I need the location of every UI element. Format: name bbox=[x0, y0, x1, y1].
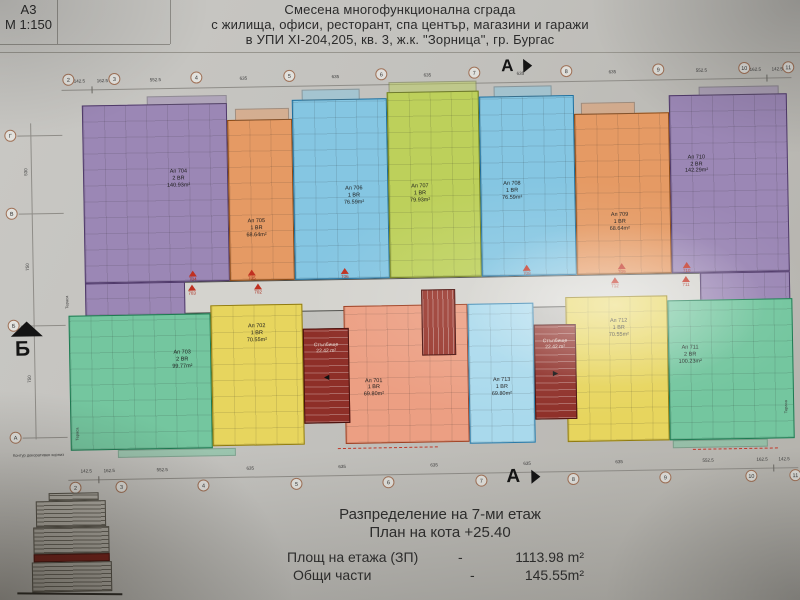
footer-area-value: 1113.98 m² bbox=[492, 549, 584, 565]
apartment-name: Ап 709 bbox=[609, 212, 629, 219]
axis-circle-bottom-7: 7 bbox=[475, 475, 487, 487]
apartment-name: Ап 702 bbox=[247, 323, 267, 330]
apartment-706: Ап 706 1 BR 76.59m² bbox=[292, 98, 390, 280]
entrance-number: 711 bbox=[679, 282, 693, 288]
top-dim-10: 142.5 bbox=[772, 66, 783, 71]
axis-circle-top-7: 7 bbox=[468, 67, 480, 79]
top-dim-7: 635 bbox=[609, 69, 617, 74]
apartment-area: 69.80m² bbox=[492, 390, 512, 397]
apartment-name: Ап 705 bbox=[246, 218, 266, 225]
terrace-710 bbox=[699, 85, 779, 95]
section-marker-B-triangle-icon bbox=[11, 321, 43, 337]
entrance-708: 708 bbox=[520, 265, 534, 277]
axis-circle-top-9: 9 bbox=[652, 63, 664, 75]
apartment-701-label: Ап 701 1 BR 69.80m² bbox=[364, 378, 385, 399]
apartment-area: 100.23m² bbox=[679, 358, 702, 365]
apartment-area: 76.59m² bbox=[502, 195, 522, 202]
entrance-711: 711 bbox=[679, 276, 693, 288]
cornice-dashed-line-2 bbox=[693, 447, 778, 449]
apartment-707: Ап 707 1 BR 79.93m² bbox=[387, 91, 482, 279]
apartment-702-label: Ап 702 1 BR 70.55m² bbox=[247, 323, 268, 344]
cornice-dashed-line-1 bbox=[338, 446, 438, 449]
apartment-area: 69.80m² bbox=[364, 391, 384, 398]
apartment-711-label: Ап 711 2 BR 100.23m² bbox=[678, 344, 702, 365]
apartment-704: Ап 704 2 BR 140.93m² bbox=[82, 103, 230, 284]
bottom-dim-4: 635 bbox=[338, 464, 346, 469]
axis-circle-top-2: 2 bbox=[62, 74, 74, 86]
terrace-south-west bbox=[118, 448, 236, 458]
apartment-711: Ап 711 2 BR 100.23m² bbox=[667, 298, 794, 440]
entrance-number: 705 bbox=[245, 275, 259, 281]
apartment-name: Ап 708 bbox=[502, 181, 522, 188]
stair-area: 22.42 m² bbox=[314, 348, 339, 355]
footer-area-label: Площ на етажа (ЗП) bbox=[287, 549, 418, 565]
terrace-706 bbox=[302, 89, 360, 101]
apartment-name: Ап 712 bbox=[609, 318, 629, 325]
bottom-dim-9: 162.5 bbox=[756, 457, 767, 462]
footer-area-dash: - bbox=[458, 549, 463, 565]
stair-direction-arrow-icon: ◀ bbox=[324, 374, 330, 382]
section-marker-flag-icon bbox=[531, 470, 540, 484]
apartment-area: 140.93m² bbox=[167, 182, 190, 189]
floor-plan-drawing: 2 3 4 5 6 7 8 9 10 11 142.5 162.5 552.5 … bbox=[0, 48, 800, 522]
apartment-area: 70.55m² bbox=[247, 337, 267, 344]
apartment-name: Ап 707 bbox=[410, 183, 430, 190]
terrace-705 bbox=[235, 108, 289, 121]
apartment-705-label: Ап 705 1 BR 68.64m² bbox=[246, 218, 267, 239]
entrance-number: 712 bbox=[608, 283, 622, 289]
entrance-number: 702 bbox=[251, 289, 265, 295]
axis-circle-bottom-3: 3 bbox=[115, 481, 127, 493]
apartment-710-label: Ап 710 2 BR 142.29m² bbox=[685, 154, 709, 175]
bottom-dim-5: 635 bbox=[430, 462, 438, 467]
entrance-number: 708 bbox=[520, 271, 534, 277]
apartment-name: Ап 706 bbox=[344, 185, 364, 192]
axis-circle-left-G: Г bbox=[4, 130, 16, 142]
terrace-south-east bbox=[673, 439, 768, 449]
bottom-dim-2: 552.5 bbox=[157, 467, 168, 472]
footer-common-label: Общи части bbox=[293, 567, 371, 583]
terrace-704 bbox=[147, 95, 227, 105]
top-dim-8: 552.5 bbox=[696, 68, 707, 73]
terrace-709 bbox=[581, 102, 635, 115]
section-marker-flag-icon bbox=[523, 59, 532, 73]
bottom-dim-10: 142.5 bbox=[778, 456, 789, 461]
apartment-708: Ап 708 1 BR 76.59m² bbox=[479, 95, 577, 277]
apartment-name: Ап 703 bbox=[172, 350, 192, 357]
apartment-area: 99.77m² bbox=[172, 363, 192, 370]
stair-direction-arrow-icon: ▶ bbox=[553, 370, 559, 378]
bottom-dim-8: 552.5 bbox=[702, 458, 713, 463]
entrance-709: 709 bbox=[615, 263, 629, 275]
top-dim-tick-1 bbox=[91, 86, 92, 93]
left-dim-1: 750 bbox=[25, 263, 30, 271]
entrance-number: 710 bbox=[680, 268, 694, 274]
project-title-line3: в УПИ XI-204,205, кв. 3, ж.к. "Зорница",… bbox=[0, 32, 800, 47]
axis-circle-top-4: 4 bbox=[190, 71, 202, 83]
apartment-709: Ап 709 1 BR 68.64m² bbox=[574, 112, 672, 275]
top-dim-2: 552.5 bbox=[150, 77, 161, 82]
bottom-dim-6: 635 bbox=[523, 461, 531, 466]
top-dim-tick-2 bbox=[766, 75, 767, 82]
stair-area: 22.42 m² bbox=[543, 344, 568, 351]
apartment-area: 70.55m² bbox=[609, 332, 629, 339]
axis-circle-top-11: 11 bbox=[782, 61, 794, 73]
axis-circle-bottom-10: 10 bbox=[745, 470, 757, 482]
terrace-text-1: Тераса bbox=[64, 296, 69, 309]
terrace-text-2: Тераса bbox=[74, 427, 79, 440]
stairwell-west: Стълбище 22.42 m² ◀ bbox=[303, 328, 351, 424]
section-marker-A-bottom: А bbox=[506, 466, 520, 488]
footer-common-dash: - bbox=[470, 567, 475, 583]
photo-of-floor-plan-sheet: { "sheet": { "code": "А3", "scale": "М 1… bbox=[0, 0, 800, 600]
top-dim-5: 635 bbox=[424, 72, 432, 77]
section-marker-A-top: А bbox=[501, 56, 514, 76]
bottom-dimension-line bbox=[68, 467, 798, 481]
apartment-708-label: Ап 708 1 BR 76.59m² bbox=[502, 181, 523, 202]
axis-circle-bottom-8: 8 bbox=[567, 473, 579, 485]
axis-circle-bottom-5: 5 bbox=[290, 478, 302, 490]
apartment-name: Ап 713 bbox=[492, 377, 512, 384]
left-leader-4 bbox=[23, 437, 68, 439]
apartment-704-wing bbox=[85, 282, 186, 317]
footer-floor-title: Разпределение на 7-ми етаж bbox=[90, 506, 790, 523]
facade-detail-block-3 bbox=[32, 561, 113, 592]
entrance-703: 703 bbox=[185, 285, 199, 297]
project-title-line2: с жилища, офиси, ресторант, спа център, … bbox=[0, 17, 800, 32]
bottom-dim-3: 635 bbox=[246, 466, 254, 471]
entrance-number: 703 bbox=[185, 291, 199, 297]
top-dim-9: 162.5 bbox=[750, 67, 761, 72]
apartment-area: 68.64m² bbox=[246, 232, 266, 239]
bottom-dim-tick-2 bbox=[773, 464, 774, 471]
axis-circle-bottom-6: 6 bbox=[382, 476, 394, 488]
apartment-712-label: Ап 712 1 BR 70.55m² bbox=[609, 318, 630, 339]
apartment-703: Ап 703 2 BR 99.77m² bbox=[68, 313, 212, 450]
axis-circle-top-10: 10 bbox=[738, 62, 750, 74]
terrace-text-3: Тераса bbox=[783, 400, 788, 413]
top-dim-3: 635 bbox=[240, 76, 248, 81]
entrance-702: 702 bbox=[251, 283, 265, 295]
top-dim-4: 635 bbox=[332, 74, 340, 79]
axis-circle-left-V: В bbox=[6, 208, 18, 220]
apartment-name: Ап 701 bbox=[364, 378, 384, 385]
entrance-number: 706 bbox=[338, 274, 352, 280]
entrance-number: 709 bbox=[615, 269, 629, 275]
apartment-area: 142.29m² bbox=[685, 168, 708, 175]
apartment-712: Ап 712 1 BR 70.55m² bbox=[565, 295, 670, 442]
central-shaft bbox=[421, 289, 456, 356]
bottom-dim-0: 142.5 bbox=[81, 468, 92, 473]
apartment-702: Ап 702 1 BR 70.55m² bbox=[210, 304, 304, 447]
entrance-712: 712 bbox=[608, 277, 622, 289]
project-title-line1: Смесена многофункционална сграда bbox=[0, 2, 800, 17]
facade-detail-baseline bbox=[17, 592, 122, 595]
apartment-713-label: Ап 713 1 BR 69.80m² bbox=[492, 377, 513, 398]
entrance-710: 710 bbox=[680, 262, 694, 274]
left-dimension-line bbox=[30, 123, 37, 439]
entrance-704: 704 bbox=[186, 270, 200, 282]
left-leader-2 bbox=[19, 213, 64, 215]
stairwell-east: Стълбище 22.42 m² ▶ bbox=[534, 324, 578, 420]
apartment-713: Ап 713 1 BR 69.80m² bbox=[467, 303, 535, 444]
axis-circle-bottom-11: 11 bbox=[789, 469, 800, 481]
axis-circle-top-3: 3 bbox=[108, 73, 120, 85]
axis-circle-top-8: 8 bbox=[560, 65, 572, 77]
apartment-703-label: Ап 703 2 BR 99.77m² bbox=[172, 350, 193, 371]
top-dim-1: 162.5 bbox=[97, 78, 108, 83]
apartment-710: Ап 710 2 BR 142.29m² bbox=[669, 93, 790, 273]
axis-circle-bottom-9: 9 bbox=[659, 471, 671, 483]
footer-level-title: План на кота +25.40 bbox=[90, 524, 790, 541]
clipped-legend: Ателиет 1 Б 2 Б bbox=[756, 546, 800, 581]
axis-circle-left-A: А bbox=[10, 432, 22, 444]
apartment-706-label: Ап 706 1 BR 76.59m² bbox=[344, 185, 365, 206]
apartment-area: 76.59m² bbox=[344, 199, 364, 206]
left-leader-1 bbox=[17, 135, 62, 137]
footer-common-value: 145.55m² bbox=[492, 567, 584, 583]
section-marker-B: Б bbox=[15, 337, 31, 361]
entrance-705: 705 bbox=[245, 269, 259, 281]
terrace-707 bbox=[388, 81, 476, 94]
entrance-706: 706 bbox=[338, 268, 352, 280]
apartment-704-label: Ап 704 2 BR 140.93m² bbox=[167, 168, 191, 189]
axis-circle-top-5: 5 bbox=[283, 70, 295, 82]
apartment-705: Ап 705 1 BR 68.64m² bbox=[227, 119, 295, 281]
axis-circle-top-6: 6 bbox=[375, 68, 387, 80]
terrace-708 bbox=[494, 85, 552, 97]
left-dim-2: 750 bbox=[27, 375, 32, 383]
axis-circle-bottom-4: 4 bbox=[197, 479, 209, 491]
stairwell-label: Стълбище 22.42 m² bbox=[543, 337, 568, 350]
cornice-note: Контур декоративен корниз bbox=[13, 452, 64, 458]
stairwell-label: Стълбище 22.42 m² bbox=[314, 341, 339, 354]
entrance-number: 704 bbox=[186, 276, 200, 282]
top-dim-0: 142.5 bbox=[74, 78, 85, 83]
apartment-area: 79.93m² bbox=[410, 197, 430, 204]
left-dim-0: 530 bbox=[23, 168, 28, 176]
apartment-707-label: Ап 707 1 BR 79.93m² bbox=[410, 183, 431, 204]
bottom-dim-tick-1 bbox=[98, 476, 99, 483]
bottom-dim-1: 162.5 bbox=[104, 468, 115, 473]
bottom-dim-7: 635 bbox=[615, 459, 623, 464]
apartment-709-label: Ап 709 1 BR 68.64m² bbox=[609, 212, 630, 233]
apartment-area: 68.64m² bbox=[610, 226, 630, 233]
